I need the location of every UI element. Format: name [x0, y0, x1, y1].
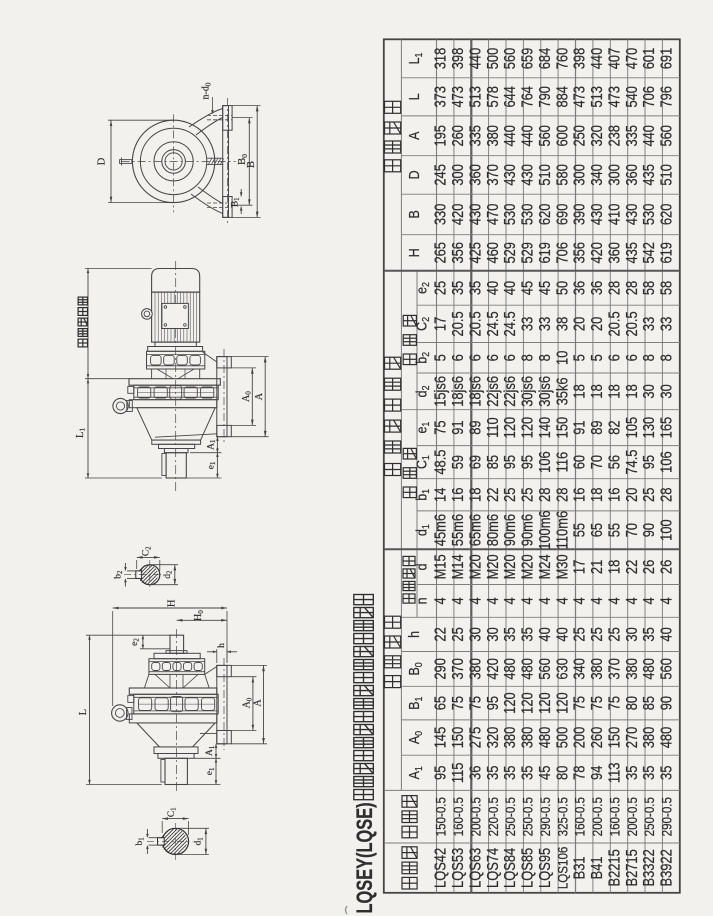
svg-text:560: 560 [658, 658, 675, 680]
svg-text:440: 440 [588, 48, 605, 70]
svg-text:440: 440 [466, 48, 483, 70]
svg-text:100m6: 100m6 [536, 510, 553, 550]
svg-text:6: 6 [623, 354, 640, 361]
svg-text:95: 95 [519, 455, 536, 469]
svg-text:113: 113 [605, 762, 622, 783]
svg-text:796: 796 [658, 86, 675, 108]
svg-text:30: 30 [640, 384, 657, 398]
svg-text:4: 4 [571, 597, 588, 604]
svg-text:75: 75 [571, 696, 588, 710]
svg-text:18: 18 [605, 384, 622, 398]
svg-text:h: h [406, 631, 422, 638]
svg-text:542: 542 [640, 242, 657, 264]
svg-text:398: 398 [571, 48, 588, 70]
svg-text:380: 380 [623, 658, 640, 680]
svg-text:58: 58 [658, 281, 675, 295]
svg-text:B2215: B2215 [605, 849, 622, 886]
svg-text:35: 35 [501, 627, 518, 641]
svg-text:40: 40 [501, 281, 518, 295]
svg-text:6: 6 [466, 354, 483, 361]
svg-text:15js6: 15js6 [432, 376, 449, 407]
svg-text:A: A [254, 392, 265, 400]
svg-text:94: 94 [588, 765, 605, 779]
svg-text:16: 16 [571, 487, 588, 501]
svg-text:120: 120 [553, 692, 570, 714]
svg-text:48.5: 48.5 [432, 449, 449, 474]
svg-text:5: 5 [571, 354, 588, 361]
svg-text:480: 480 [519, 658, 536, 680]
svg-text:56: 56 [605, 455, 622, 469]
svg-text:4: 4 [449, 597, 466, 604]
svg-text:65: 65 [588, 523, 605, 537]
svg-text:30: 30 [466, 627, 483, 641]
svg-text:LQS53: LQS53 [449, 848, 466, 888]
svg-text:335: 335 [623, 125, 640, 147]
svg-text:16: 16 [449, 487, 466, 501]
svg-text:601: 601 [640, 48, 657, 70]
svg-text:80: 80 [553, 765, 570, 779]
svg-text:25: 25 [588, 627, 605, 641]
svg-text:116: 116 [553, 452, 570, 473]
svg-text:335: 335 [466, 125, 483, 147]
svg-text:L: L [406, 93, 422, 100]
svg-text:4: 4 [588, 597, 605, 604]
svg-text:120: 120 [519, 417, 536, 439]
svg-text:25: 25 [449, 627, 466, 641]
svg-text:160-0.5: 160-0.5 [451, 797, 466, 836]
svg-text:22js6: 22js6 [484, 376, 501, 407]
svg-text:18: 18 [588, 487, 605, 501]
svg-text:5: 5 [588, 354, 605, 361]
svg-text:265: 265 [432, 242, 449, 264]
svg-text:195: 195 [432, 125, 449, 147]
svg-text:82: 82 [605, 420, 622, 434]
svg-text:659: 659 [519, 48, 536, 70]
svg-text:480: 480 [501, 658, 518, 680]
svg-text:35: 35 [658, 765, 675, 779]
svg-text:370: 370 [484, 164, 501, 186]
svg-text:500: 500 [484, 48, 501, 70]
svg-text:130: 130 [640, 417, 657, 439]
svg-text:529: 529 [501, 242, 518, 264]
svg-text:407: 407 [605, 48, 622, 70]
svg-text:90m6: 90m6 [519, 514, 536, 546]
svg-text:360: 360 [466, 164, 483, 186]
svg-text:260: 260 [449, 125, 466, 147]
svg-text:LQS42: LQS42 [432, 848, 449, 888]
svg-text:B3322: B3322 [640, 849, 657, 886]
svg-text:21: 21 [588, 560, 605, 574]
svg-text:425: 425 [466, 242, 483, 264]
svg-text:106: 106 [658, 451, 675, 473]
svg-text:540: 540 [623, 86, 640, 108]
svg-text:22: 22 [623, 560, 640, 574]
svg-text:430: 430 [519, 164, 536, 186]
svg-text:45m6: 45m6 [432, 514, 449, 546]
svg-text:59: 59 [449, 455, 466, 469]
svg-text:58: 58 [640, 281, 657, 295]
svg-text:4: 4 [640, 597, 657, 604]
svg-text:410: 410 [605, 204, 622, 226]
svg-text:480: 480 [640, 658, 657, 680]
svg-text:B3922: B3922 [658, 849, 675, 886]
svg-text:619: 619 [658, 242, 675, 264]
svg-text:22: 22 [432, 627, 449, 641]
svg-text:435: 435 [640, 164, 657, 186]
svg-text:L: L [78, 709, 89, 715]
svg-text:764: 764 [519, 86, 536, 108]
svg-text:18: 18 [571, 384, 588, 398]
svg-text:578: 578 [484, 86, 501, 108]
svg-text:300: 300 [449, 164, 466, 186]
svg-text:473: 473 [571, 86, 588, 108]
svg-text:380: 380 [466, 658, 483, 680]
svg-text:30: 30 [623, 627, 640, 641]
svg-text:22: 22 [484, 487, 501, 501]
svg-text:110: 110 [484, 417, 501, 438]
svg-text:25: 25 [640, 487, 657, 501]
svg-text:LQS84: LQS84 [501, 848, 518, 888]
svg-text:17: 17 [571, 560, 588, 574]
svg-text:75: 75 [588, 696, 605, 710]
svg-text:20.5: 20.5 [623, 311, 640, 336]
svg-text:28: 28 [553, 487, 570, 501]
svg-text:30: 30 [484, 627, 501, 641]
svg-text:4: 4 [519, 597, 536, 604]
svg-text:24.5: 24.5 [484, 311, 501, 336]
svg-text:480: 480 [658, 727, 675, 749]
svg-text:LQS74: LQS74 [484, 848, 501, 888]
svg-text:245: 245 [432, 164, 449, 186]
svg-text:430: 430 [588, 204, 605, 226]
svg-text:75: 75 [432, 420, 449, 434]
svg-text:H: H [167, 599, 178, 607]
svg-text:340: 340 [571, 658, 588, 680]
svg-text:420: 420 [449, 204, 466, 226]
svg-text:18js6: 18js6 [466, 376, 483, 407]
svg-text:LQS106: LQS106 [555, 847, 570, 890]
svg-text:n: n [413, 597, 429, 604]
svg-text:620: 620 [658, 204, 675, 226]
svg-text:25: 25 [501, 487, 518, 501]
svg-text:150: 150 [449, 727, 466, 749]
svg-text:40: 40 [484, 281, 501, 295]
svg-text:160-0.5: 160-0.5 [608, 797, 623, 836]
svg-text:373: 373 [432, 86, 449, 108]
svg-text:26: 26 [658, 560, 675, 574]
svg-text:30: 30 [658, 384, 675, 398]
svg-text:470: 470 [484, 204, 501, 226]
svg-text:B: B [246, 161, 257, 168]
svg-text:440: 440 [519, 125, 536, 147]
svg-text:70: 70 [588, 455, 605, 469]
svg-text:35: 35 [484, 765, 501, 779]
svg-text:275: 275 [466, 727, 483, 749]
svg-text:M20: M20 [501, 554, 518, 579]
svg-text:LQSEY(LQSE): LQSEY(LQSE) [353, 802, 378, 913]
svg-text:580: 580 [553, 164, 570, 186]
svg-text:95: 95 [432, 765, 449, 779]
svg-text:75: 75 [605, 696, 622, 710]
svg-text:8: 8 [658, 354, 675, 361]
svg-text:320: 320 [484, 727, 501, 749]
svg-text:36: 36 [571, 281, 588, 295]
svg-text:370: 370 [449, 658, 466, 680]
svg-text:150: 150 [553, 417, 570, 439]
svg-text:460: 460 [484, 242, 501, 264]
svg-text:398: 398 [449, 48, 466, 70]
svg-text:165: 165 [658, 417, 675, 439]
svg-text:120: 120 [501, 417, 518, 439]
svg-text:290-0.5: 290-0.5 [538, 797, 553, 836]
svg-text:95: 95 [501, 455, 518, 469]
svg-text:420: 420 [588, 242, 605, 264]
svg-text:250-0.5: 250-0.5 [521, 797, 536, 836]
svg-text:600: 600 [553, 125, 570, 147]
svg-text:260: 260 [588, 727, 605, 749]
svg-text:4: 4 [605, 597, 622, 604]
svg-text:LQS85: LQS85 [519, 848, 536, 888]
svg-text:380: 380 [519, 727, 536, 749]
svg-text:33: 33 [640, 317, 657, 331]
svg-text:17: 17 [432, 317, 449, 331]
svg-text:290-0.5: 290-0.5 [660, 797, 675, 836]
svg-text:28: 28 [605, 281, 622, 295]
svg-text:150-0.5: 150-0.5 [434, 797, 449, 836]
svg-text:200-0.5: 200-0.5 [590, 797, 605, 836]
svg-text:560: 560 [536, 658, 553, 680]
svg-text:55: 55 [571, 523, 588, 537]
svg-text:50: 50 [553, 281, 570, 295]
svg-text:14: 14 [432, 487, 449, 501]
svg-text:250-0.5: 250-0.5 [642, 797, 657, 836]
svg-text:706: 706 [640, 86, 657, 108]
svg-text:89: 89 [466, 420, 483, 434]
svg-text:4: 4 [432, 597, 449, 604]
svg-text:d: d [413, 563, 429, 570]
svg-text:90m6: 90m6 [501, 514, 518, 546]
svg-text:390: 390 [571, 204, 588, 226]
svg-text:250-0.5: 250-0.5 [503, 797, 518, 836]
svg-text:35: 35 [501, 765, 518, 779]
svg-text:M20: M20 [484, 554, 501, 579]
svg-text:140: 140 [536, 417, 553, 439]
svg-text:20.5: 20.5 [449, 311, 466, 336]
svg-text:35: 35 [640, 765, 657, 779]
svg-text:790: 790 [536, 86, 553, 108]
svg-text:69: 69 [466, 455, 483, 469]
svg-text:4: 4 [623, 597, 640, 604]
svg-text:22js6: 22js6 [501, 376, 518, 407]
svg-text:25: 25 [519, 487, 536, 501]
svg-text:A: A [252, 699, 263, 707]
svg-text:16: 16 [605, 487, 622, 501]
svg-text:B31: B31 [571, 856, 588, 879]
svg-text:B41: B41 [588, 856, 605, 879]
svg-text:B: B [406, 210, 422, 218]
svg-text:500: 500 [553, 727, 570, 749]
svg-text:106: 106 [536, 451, 553, 473]
svg-text:290: 290 [432, 658, 449, 680]
svg-text:LQS95: LQS95 [536, 848, 553, 888]
svg-text:120: 120 [501, 692, 518, 714]
svg-text:160-0.5: 160-0.5 [573, 797, 588, 836]
svg-text:M15: M15 [432, 554, 449, 579]
svg-text:330: 330 [432, 204, 449, 226]
svg-text:5: 5 [432, 354, 449, 361]
svg-text:35: 35 [623, 765, 640, 779]
svg-text:H: H [406, 248, 422, 257]
svg-text:8: 8 [640, 354, 657, 361]
svg-text:356: 356 [571, 242, 588, 264]
svg-text:8: 8 [536, 354, 553, 361]
svg-text:35k6: 35k6 [553, 377, 570, 405]
svg-text:530: 530 [519, 204, 536, 226]
svg-text:4: 4 [536, 597, 553, 604]
svg-text:10: 10 [553, 350, 570, 364]
svg-text:6: 6 [501, 354, 518, 361]
svg-text:430: 430 [466, 204, 483, 226]
svg-text:80m6: 80m6 [484, 514, 501, 546]
svg-text:620: 620 [536, 204, 553, 226]
svg-text:420: 420 [484, 658, 501, 680]
svg-text:473: 473 [449, 86, 466, 108]
svg-text:300: 300 [571, 164, 588, 186]
svg-text:690: 690 [553, 204, 570, 226]
svg-text:B2715: B2715 [623, 849, 640, 886]
svg-text:480: 480 [536, 727, 553, 749]
svg-text:55: 55 [605, 523, 622, 537]
svg-text:M20: M20 [466, 554, 483, 579]
svg-text:35: 35 [519, 627, 536, 641]
svg-text:120: 120 [519, 692, 536, 714]
svg-text:270: 270 [623, 727, 640, 749]
svg-text:40: 40 [658, 627, 675, 641]
svg-text:74.5: 74.5 [623, 449, 640, 474]
svg-text:28: 28 [623, 281, 640, 295]
svg-text:380: 380 [588, 658, 605, 680]
svg-text:513: 513 [588, 86, 605, 108]
svg-text:60: 60 [571, 455, 588, 469]
svg-text:h: h [217, 643, 227, 648]
svg-text:115: 115 [449, 762, 466, 783]
svg-text:65m6: 65m6 [466, 514, 483, 546]
svg-text:20: 20 [623, 487, 640, 501]
svg-text:90: 90 [658, 696, 675, 710]
svg-text:120: 120 [536, 692, 553, 714]
svg-text:65: 65 [432, 696, 449, 710]
svg-text:28: 28 [536, 487, 553, 501]
svg-text:70: 70 [623, 523, 640, 537]
svg-text:91: 91 [449, 420, 466, 434]
svg-text:95: 95 [484, 696, 501, 710]
svg-text:510: 510 [658, 164, 675, 186]
svg-text:M20: M20 [519, 554, 536, 579]
svg-text:18: 18 [588, 384, 605, 398]
svg-text:75: 75 [449, 696, 466, 710]
svg-text:30js6: 30js6 [536, 376, 553, 407]
svg-text:630: 630 [553, 658, 570, 680]
svg-text:38: 38 [553, 317, 570, 331]
svg-text:6: 6 [484, 354, 501, 361]
svg-text:M30: M30 [553, 554, 570, 579]
svg-text:24.5: 24.5 [501, 311, 518, 336]
svg-text:200-0.5: 200-0.5 [469, 797, 484, 836]
svg-text:510: 510 [536, 164, 553, 186]
svg-text:884: 884 [553, 86, 570, 108]
svg-text:45: 45 [536, 281, 553, 295]
svg-text:D: D [406, 170, 422, 179]
svg-text:238: 238 [605, 125, 622, 147]
svg-text:33: 33 [658, 317, 675, 331]
svg-text:250: 250 [571, 125, 588, 147]
svg-text:18: 18 [623, 384, 640, 398]
svg-text:25: 25 [571, 627, 588, 641]
svg-text:18js6: 18js6 [449, 376, 466, 407]
svg-text:435: 435 [623, 242, 640, 264]
svg-text:320: 320 [588, 125, 605, 147]
svg-text:4: 4 [658, 597, 675, 604]
svg-text:100: 100 [658, 519, 675, 541]
svg-text:A: A [406, 131, 422, 140]
svg-text:760: 760 [553, 48, 570, 70]
svg-text:25: 25 [605, 627, 622, 641]
svg-text:340: 340 [588, 164, 605, 186]
svg-text:30js6: 30js6 [519, 376, 536, 407]
svg-text:6: 6 [449, 354, 466, 361]
svg-text:33: 33 [519, 317, 536, 331]
svg-text:18: 18 [605, 560, 622, 574]
svg-text:18: 18 [466, 487, 483, 501]
svg-text:28: 28 [658, 487, 675, 501]
svg-text:35: 35 [640, 627, 657, 641]
svg-text:M24: M24 [536, 554, 553, 579]
svg-text:89: 89 [588, 420, 605, 434]
svg-text:20.5: 20.5 [466, 311, 483, 336]
svg-text:356: 356 [449, 242, 466, 264]
svg-text:380: 380 [501, 727, 518, 749]
svg-text:513: 513 [466, 86, 483, 108]
svg-text:529: 529 [519, 242, 536, 264]
svg-text:360: 360 [623, 164, 640, 186]
svg-text:91: 91 [571, 420, 588, 434]
svg-text:325-0.5: 325-0.5 [555, 797, 570, 836]
svg-text:473: 473 [605, 86, 622, 108]
svg-text:706: 706 [553, 242, 570, 264]
svg-text:26: 26 [640, 560, 657, 574]
svg-text:200: 200 [571, 727, 588, 749]
svg-text:40: 40 [536, 627, 553, 641]
svg-text:200-0.5: 200-0.5 [625, 797, 640, 836]
svg-text:684: 684 [536, 48, 553, 70]
svg-text:45: 45 [519, 281, 536, 295]
svg-text:45: 45 [536, 765, 553, 779]
svg-text:110m6: 110m6 [553, 511, 570, 550]
svg-text:150: 150 [605, 727, 622, 749]
svg-text:35: 35 [519, 765, 536, 779]
svg-text:85: 85 [484, 455, 501, 469]
svg-text:530: 530 [501, 204, 518, 226]
svg-text:35: 35 [449, 281, 466, 295]
svg-text:78: 78 [571, 765, 588, 779]
svg-text:95: 95 [640, 455, 657, 469]
svg-text:440: 440 [501, 125, 518, 147]
svg-text:8: 8 [519, 354, 536, 361]
svg-text:220-0.5: 220-0.5 [486, 797, 501, 836]
svg-text:440: 440 [640, 125, 657, 147]
svg-text:35: 35 [466, 281, 483, 295]
svg-text:380: 380 [640, 727, 657, 749]
